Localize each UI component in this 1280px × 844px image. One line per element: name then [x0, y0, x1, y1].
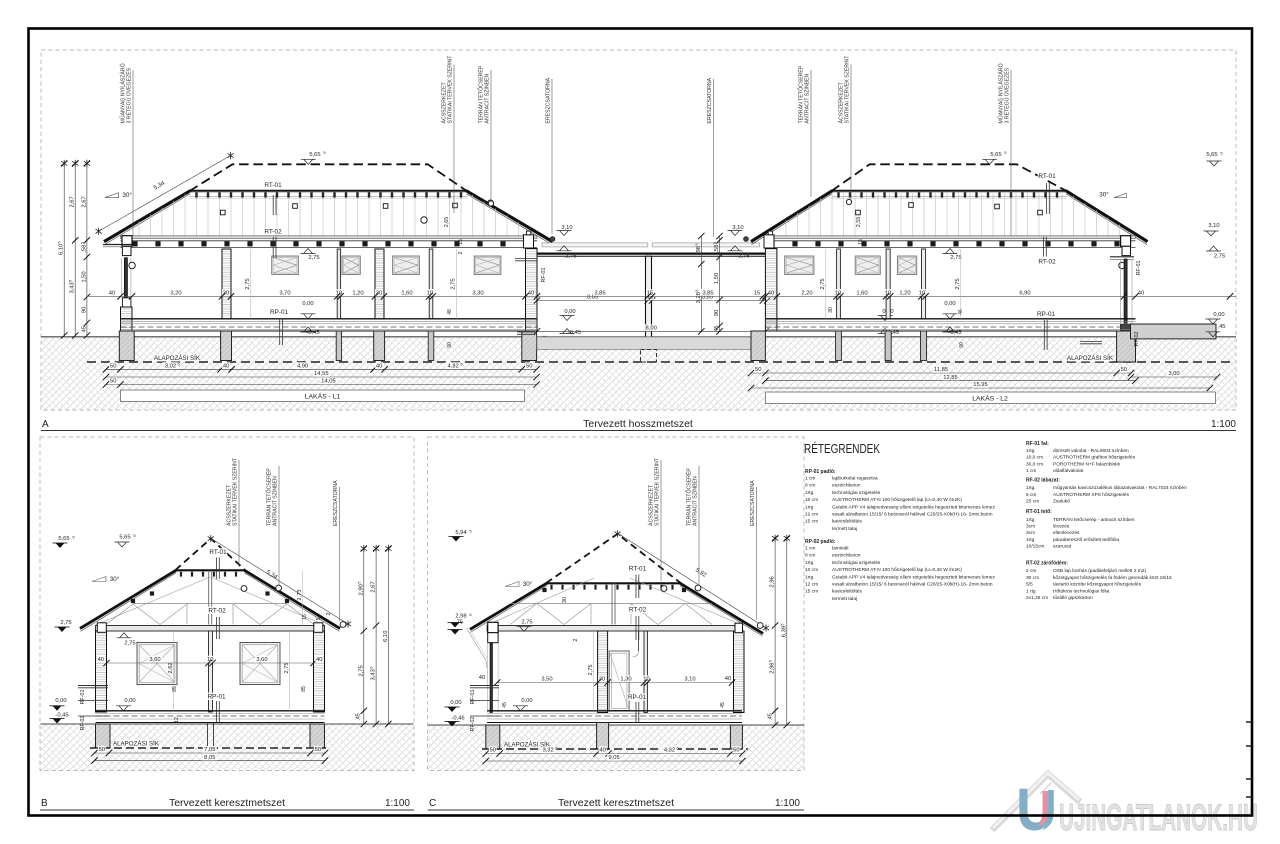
svg-text:LAKÁS - L1: LAKÁS - L1 — [305, 392, 341, 401]
svg-text:Tervezett hosszmetszet: Tervezett hosszmetszet — [583, 418, 693, 430]
svg-text:RT-02: RT-02 — [208, 608, 226, 615]
svg-text:4,90: 4,90 — [297, 364, 308, 370]
svg-text:12 cm: 12 cm — [805, 512, 818, 518]
svg-text:RÉTEGRENDEK: RÉTEGRENDEK — [804, 441, 880, 456]
svg-text:2: 2 — [326, 612, 332, 615]
svg-text:kavicsfeltöltés: kavicsfeltöltés — [832, 589, 862, 595]
svg-text:10: 10 — [207, 657, 213, 663]
svg-text:15: 15 — [647, 290, 653, 296]
svg-text:TERRÁN TETŐCSERÉP: TERRÁN TETŐCSERÉP — [798, 65, 805, 123]
svg-text:ALAPOZÁSI SÍK: ALAPOZÁSI SÍK — [113, 741, 160, 748]
svg-text:5: 5 — [460, 362, 462, 367]
svg-text:45: 45 — [502, 702, 508, 708]
svg-text:TERRÁN TETŐCSERÉP: TERRÁN TETŐCSERÉP — [686, 468, 693, 526]
svg-text:1,30: 1,30 — [620, 677, 631, 683]
svg-text:12 cm: 12 cm — [805, 582, 818, 588]
svg-text:50: 50 — [733, 748, 739, 754]
svg-text:3,10: 3,10 — [1208, 223, 1219, 229]
svg-text:0,00: 0,00 — [564, 309, 575, 315]
svg-text:6,39: 6,39 — [781, 626, 787, 637]
svg-text:5: 5 — [68, 280, 73, 282]
svg-text:termett talaj: termett talaj — [832, 596, 857, 602]
svg-text:30 cm: 30 cm — [1026, 575, 1039, 581]
svg-text:ÁCSSZERKEZET: ÁCSSZERKEZET — [648, 484, 655, 526]
svg-text:2,20: 2,20 — [801, 290, 812, 296]
svg-text:RP-02 padló:: RP-02 padló: — [805, 539, 836, 545]
svg-text:,58: ,58 — [81, 245, 87, 253]
svg-text:8,00: 8,00 — [646, 326, 657, 332]
svg-text:50: 50 — [490, 748, 496, 754]
svg-text:15: 15 — [754, 290, 760, 296]
svg-text:30,0 cm: 30,0 cm — [1026, 461, 1043, 467]
svg-text:45: 45 — [714, 325, 720, 331]
svg-text:12,85: 12,85 — [943, 375, 958, 381]
svg-text:ERESZCSATORNA: ERESZCSATORNA — [546, 77, 552, 123]
svg-text:2,75: 2,75 — [284, 663, 290, 674]
svg-text:RP-01 padló:: RP-01 padló: — [805, 469, 836, 475]
svg-text:laminált: laminált — [832, 546, 849, 552]
svg-text:1,60: 1,60 — [401, 290, 412, 296]
svg-text:STATIKAI TERVEK SZERINT: STATIKAI TERVEK SZERINT — [655, 457, 661, 526]
svg-text:2,75: 2,75 — [60, 620, 71, 626]
svg-text:RP-01: RP-01 — [1037, 311, 1056, 318]
svg-text:5: 5 — [79, 242, 84, 244]
svg-text:RT-02 zárófödém:: RT-02 zárófödém: — [1026, 561, 1068, 567]
svg-text:műgyantás kavicszúzalékos lába: műgyantás kavicszúzalékos lábazatvakolat… — [1053, 485, 1187, 491]
svg-text:1,20: 1,20 — [899, 290, 910, 296]
svg-text:1rtg: 1rtg — [805, 490, 814, 496]
svg-text:2,75: 2,75 — [950, 255, 961, 261]
svg-text:5: 5 — [356, 582, 361, 584]
svg-text:40: 40 — [599, 748, 605, 754]
svg-text:1:100: 1:100 — [385, 798, 410, 809]
svg-text:30°: 30° — [523, 580, 533, 588]
svg-text:2,75: 2,75 — [308, 255, 319, 261]
svg-text:RF-02: RF-02 — [80, 716, 86, 731]
svg-text:10 cm: 10 cm — [805, 567, 818, 573]
svg-text:2,67: 2,67 — [371, 581, 377, 592]
svg-text:2,75: 2,75 — [245, 278, 251, 289]
svg-text:2,75: 2,75 — [565, 254, 576, 260]
svg-text:1rtg.: 1rtg. — [1026, 448, 1036, 454]
svg-text:TERRÁN tetőcserép - antracit s: TERRÁN tetőcserép - antracit színben — [1053, 516, 1135, 523]
svg-text:5,65: 5,65 — [58, 536, 69, 542]
svg-text:3,10: 3,10 — [684, 677, 695, 683]
svg-text:6,10: 6,10 — [59, 244, 65, 255]
svg-text:5: 5 — [779, 624, 784, 626]
svg-text:ANTRACIT SZÍNBEN: ANTRACIT SZÍNBEN — [484, 73, 491, 123]
svg-text:3,43: 3,43 — [70, 282, 76, 293]
svg-text:5: 5 — [178, 362, 180, 367]
svg-text:Zsalukő: Zsalukő — [1053, 499, 1070, 505]
svg-text:10/15cm: 10/15cm — [1026, 544, 1044, 550]
svg-text:2,75: 2,75 — [955, 278, 961, 289]
svg-text:0,00: 0,00 — [124, 698, 135, 704]
svg-text:8,05: 8,05 — [204, 755, 215, 761]
svg-text:2,90: 2,90 — [358, 584, 364, 595]
svg-text:technológiai szigetelés: technológiai szigetelés — [832, 490, 881, 496]
svg-text:RF-01: RF-01 — [80, 690, 86, 705]
svg-text:6,10: 6,10 — [383, 631, 389, 642]
svg-text:9,05: 9,05 — [608, 755, 619, 761]
svg-text:2: 2 — [458, 251, 464, 254]
svg-text:3,10: 3,10 — [561, 225, 572, 231]
svg-text:2,75: 2,75 — [358, 665, 364, 676]
svg-text:5: 5 — [316, 617, 322, 620]
svg-text:Gutabit APP V4 talajnedvesség: Gutabit APP V4 talajnedvesség elleni szi… — [832, 504, 995, 510]
svg-text:dörzsölt vakolat - RAL9003 szí: dörzsölt vakolat - RAL9003 színben — [1053, 448, 1129, 454]
svg-text:90: 90 — [714, 310, 720, 316]
svg-text:3,28: 3,28 — [696, 292, 702, 303]
svg-text:5,94: 5,94 — [455, 530, 467, 536]
svg-text:2,75: 2,75 — [820, 278, 826, 289]
svg-text:12: 12 — [174, 717, 180, 723]
svg-text:AUSTROTHERM grafitos hőszigete: AUSTROTHERM grafitos hőszigetelés — [1053, 455, 1136, 461]
svg-text:2,75: 2,75 — [1214, 254, 1225, 260]
svg-text:1 cm: 1 cm — [805, 476, 815, 482]
svg-text:4,82: 4,82 — [448, 364, 459, 370]
svg-text:0,00: 0,00 — [944, 301, 955, 307]
svg-text:RT-02: RT-02 — [629, 607, 647, 614]
svg-text:8 cm: 8 cm — [805, 483, 815, 489]
svg-text:B: B — [41, 798, 48, 809]
svg-text:távtartó közötte kőzetgyapot h: távtartó közötte kőzetgyapot hőszigetelé… — [1053, 582, 1142, 588]
svg-text:1rtg.: 1rtg. — [1026, 485, 1036, 491]
svg-text:C: C — [429, 798, 436, 809]
svg-text:15: 15 — [302, 614, 308, 620]
svg-text:14,05: 14,05 — [321, 379, 336, 385]
svg-text:UJINGATLANOK.HU: UJINGATLANOK.HU — [1059, 797, 1258, 838]
svg-text:5: 5 — [369, 667, 374, 669]
svg-text:2,67: 2,67 — [70, 196, 76, 207]
svg-text:ERESZCSATORNA: ERESZCSATORNA — [333, 480, 339, 526]
svg-text:40: 40 — [223, 364, 229, 370]
svg-text:50: 50 — [110, 364, 116, 370]
svg-text:11,85: 11,85 — [934, 367, 948, 373]
svg-text:1:100: 1:100 — [775, 798, 800, 809]
svg-text:3 RÉTEGŰ ÜVEGEZÉS: 3 RÉTEGŰ ÜVEGEZÉS — [126, 67, 133, 123]
svg-text:40: 40 — [479, 675, 485, 681]
svg-text:RF-02: RF-02 — [1134, 332, 1140, 347]
svg-text:RF-01: RF-01 — [470, 690, 476, 705]
svg-text:1rtg: 1rtg — [805, 560, 814, 566]
svg-text:ERESZCSATORNA: ERESZCSATORNA — [707, 77, 713, 123]
svg-text:2,73: 2,73 — [297, 590, 303, 601]
svg-text:RP-01: RP-01 — [628, 694, 647, 701]
svg-text:,58: ,58 — [714, 245, 720, 253]
svg-text:LAKÁS - L2: LAKÁS - L2 — [972, 394, 1008, 403]
svg-text:-0,46: -0,46 — [451, 716, 464, 722]
svg-text:5,65: 5,65 — [1206, 152, 1217, 158]
svg-text:5: 5 — [712, 242, 717, 244]
svg-text:90: 90 — [81, 307, 87, 313]
svg-text:-0,45: -0,45 — [568, 330, 581, 336]
svg-text:40: 40 — [98, 657, 104, 663]
svg-text:RT-01: RT-01 — [629, 566, 647, 573]
svg-text:3,50: 3,50 — [541, 677, 552, 683]
svg-text:3,60: 3,60 — [256, 657, 267, 663]
svg-text:8 cm: 8 cm — [805, 553, 815, 559]
svg-text:ANTRACIT SZÍNBEN: ANTRACIT SZÍNBEN — [692, 476, 699, 526]
svg-text:1:100: 1:100 — [1211, 419, 1236, 430]
svg-text:RF-01: RF-01 — [541, 268, 547, 283]
svg-text:MŰANYAG NYÍLÁSZÁRÓ: MŰANYAG NYÍLÁSZÁRÓ — [120, 63, 127, 123]
svg-text:50: 50 — [315, 747, 321, 753]
svg-text:3,60: 3,60 — [149, 657, 160, 663]
svg-text:10: 10 — [885, 290, 891, 296]
svg-text:RT-01: RT-01 — [1038, 173, 1056, 180]
svg-text:esztrichbeton: esztrichbeton — [832, 483, 861, 489]
svg-text:RT-01: RT-01 — [264, 182, 282, 189]
svg-text:Gutabit APP V4 talajnedvesség: Gutabit APP V4 talajnedvesség elleni szi… — [832, 574, 995, 580]
svg-text:2 cm: 2 cm — [1026, 568, 1036, 574]
svg-text:-0,45: -0,45 — [55, 713, 68, 719]
svg-text:48: 48 — [447, 309, 453, 315]
svg-text:6,90: 6,90 — [1019, 290, 1030, 296]
svg-text:MŰANYAG NYÍLÁSZÁRÓ: MŰANYAG NYÍLÁSZÁRÓ — [998, 63, 1005, 123]
svg-text:40: 40 — [316, 657, 322, 663]
svg-text:45: 45 — [720, 702, 726, 708]
svg-text:30: 30 — [828, 307, 834, 313]
svg-text:,45: ,45 — [1217, 324, 1225, 330]
svg-text:RT-02: RT-02 — [1038, 259, 1056, 266]
svg-text:TERRÁN TETŐCSERÉP: TERRÁN TETŐCSERÉP — [266, 468, 273, 526]
svg-text:ellenlécezés: ellenlécezés — [1053, 530, 1080, 536]
svg-text:2,75: 2,75 — [738, 254, 749, 260]
svg-text:2,75: 2,75 — [451, 278, 457, 289]
svg-text:oldalfalvakolat: oldalfalvakolat — [1053, 468, 1084, 474]
svg-text:RF-01: RF-01 — [1136, 261, 1142, 276]
svg-text:5,65: 5,65 — [990, 152, 1001, 158]
svg-text:0,00: 0,00 — [302, 301, 313, 307]
svg-text:Hőtükrös technológiai fólia: Hőtükrös technológiai fólia — [1053, 588, 1110, 594]
svg-text:1 cm: 1 cm — [1026, 468, 1036, 474]
svg-text:30: 30 — [223, 290, 229, 296]
svg-text:14,55: 14,55 — [314, 371, 329, 377]
svg-text:tűzálló gipszkarton: tűzálló gipszkarton — [1053, 595, 1093, 601]
svg-text:1rtg: 1rtg — [1026, 517, 1035, 523]
svg-text:3,32: 3,32 — [542, 748, 553, 754]
svg-text:5,65: 5,65 — [309, 152, 320, 158]
svg-text:5: 5 — [694, 290, 699, 292]
svg-text:RP-01: RP-01 — [207, 694, 226, 701]
svg-text:30°: 30° — [122, 191, 132, 199]
svg-text:2x1,25 cm: 2x1,25 cm — [1026, 595, 1048, 601]
svg-text:,45: ,45 — [768, 713, 774, 720]
svg-text:2,67: 2,67 — [81, 196, 87, 207]
svg-text:5 cm: 5 cm — [1026, 492, 1036, 498]
svg-text:Tervezett keresztmetszet: Tervezett keresztmetszet — [169, 797, 285, 809]
svg-text:30: 30 — [562, 597, 568, 603]
svg-text:4,32: 4,32 — [664, 748, 675, 754]
svg-text:RF-02 lábazat:: RF-02 lábazat: — [1026, 478, 1060, 484]
svg-text:5: 5 — [57, 241, 62, 243]
svg-text:15 cm: 15 cm — [805, 589, 818, 595]
svg-text:40: 40 — [376, 364, 382, 370]
svg-text:ERESZCSATORNA: ERESZCSATORNA — [750, 480, 756, 526]
svg-text:5: 5 — [555, 746, 557, 751]
svg-text:3,85: 3,85 — [702, 290, 713, 296]
svg-text:1 rtg: 1 rtg — [1026, 588, 1036, 594]
svg-text:,45: ,45 — [356, 713, 362, 720]
svg-text:15: 15 — [858, 239, 864, 245]
svg-text:0,00: 0,00 — [55, 698, 66, 704]
svg-text:30: 30 — [376, 290, 382, 296]
svg-text:STATIKAI TERVEK SZERINT: STATIKAI TERVEK SZERINT — [233, 457, 239, 526]
svg-text:15,95: 15,95 — [973, 382, 988, 388]
svg-text:POROTHERM N+F falazóblokk: POROTHERM N+F falazóblokk — [1053, 461, 1121, 467]
svg-text:STATIKAI TERVEK SZERINT: STATIKAI TERVEK SZERINT — [448, 55, 454, 124]
svg-text:85: 85 — [172, 686, 178, 692]
svg-text:15: 15 — [458, 239, 464, 245]
svg-text:3,20: 3,20 — [170, 290, 181, 296]
svg-text:vasalt alzatbeton 15/15/ 6 bet: vasalt alzatbeton 15/15/ 6 betonacél hál… — [832, 512, 993, 518]
svg-text:3,43: 3,43 — [371, 669, 377, 680]
svg-text:2,75: 2,75 — [124, 641, 135, 647]
svg-text:-0,45: -0,45 — [306, 330, 319, 336]
svg-text:3 RÉTEGŰ ÜVEGEZÉS: 3 RÉTEGŰ ÜVEGEZÉS — [1004, 67, 1011, 123]
svg-text:10,0 cm: 10,0 cm — [1026, 455, 1043, 461]
svg-text:OSB lap borítás (padlásfeljáró: OSB lap borítás (padlásfeljáró mellett 2… — [1053, 568, 1146, 574]
svg-text:50: 50 — [526, 364, 532, 370]
svg-text:RT-02: RT-02 — [264, 229, 282, 236]
svg-text:1,60: 1,60 — [856, 290, 867, 296]
svg-text:3,85: 3,85 — [594, 290, 605, 296]
svg-text:3cm: 3cm — [1026, 530, 1035, 536]
svg-text:2,98: 2,98 — [770, 662, 776, 673]
svg-text:TERRÁN TETŐCSERÉP: TERRÁN TETŐCSERÉP — [478, 65, 485, 123]
svg-text:50: 50 — [755, 367, 761, 373]
svg-text:kavicsfeltöltés: kavicsfeltöltés — [832, 519, 862, 525]
svg-text:ANTRACIT SZÍNBEN: ANTRACIT SZÍNBEN — [804, 73, 811, 123]
svg-text:ALAPOZÁSI SÍK: ALAPOZÁSI SÍK — [1067, 355, 1114, 362]
svg-text:1 cm: 1 cm — [805, 546, 815, 552]
svg-text:3,00: 3,00 — [1168, 371, 1179, 377]
svg-text:termett talaj: termett talaj — [832, 526, 857, 532]
svg-text:páraáteresztő erősített tetőfó: páraáteresztő erősített tetőfólia — [1053, 537, 1119, 543]
svg-text:2,96: 2,96 — [770, 576, 776, 587]
svg-text:1rtg: 1rtg — [1026, 537, 1035, 543]
svg-text:90: 90 — [959, 342, 965, 348]
svg-text:RT-01 tető:: RT-01 tető: — [1026, 509, 1052, 515]
svg-text:3cm: 3cm — [1026, 524, 1035, 530]
svg-text:1,50: 1,50 — [714, 273, 720, 284]
svg-text:kőzetgyapot hőszigetelés fa fö: kőzetgyapot hőszigetelés fa födém gerend… — [1053, 575, 1172, 581]
svg-text:2,55: 2,55 — [856, 217, 862, 228]
svg-text:3,70: 3,70 — [279, 290, 290, 296]
svg-text:30°: 30° — [110, 575, 120, 583]
svg-text:lapburkolat ragasztva: lapburkolat ragasztva — [832, 476, 878, 482]
svg-text:Tervezett keresztmetszet: Tervezett keresztmetszet — [558, 797, 674, 809]
svg-text:1rtg: 1rtg — [805, 504, 814, 510]
svg-text:40: 40 — [109, 290, 115, 296]
svg-text:ÁCSSZERKEZET: ÁCSSZERKEZET — [838, 81, 845, 123]
svg-text:1,50: 1,50 — [81, 271, 87, 282]
svg-text:3,02: 3,02 — [165, 364, 176, 370]
svg-text:50: 50 — [110, 379, 116, 385]
svg-text:ÁCSSZERKEZET: ÁCSSZERKEZET — [226, 484, 233, 526]
svg-text:0,00: 0,00 — [1213, 312, 1224, 318]
svg-text:RT-01: RT-01 — [209, 549, 227, 556]
svg-text:lécezés: lécezés — [1053, 524, 1070, 530]
svg-text:46: 46 — [958, 309, 964, 315]
svg-text:25 cm: 25 cm — [1026, 499, 1039, 505]
svg-text:15 cm: 15 cm — [805, 519, 818, 525]
svg-text:AUSTROTHERM AT-N 100 hőszigete: AUSTROTHERM AT-N 100 hőszigetelő lap (U=… — [832, 497, 962, 503]
svg-text:5: 5 — [694, 243, 699, 245]
svg-text:AUSTROTHERM XPS hőszigetelés: AUSTROTHERM XPS hőszigetelés — [1053, 492, 1130, 498]
svg-text:ÁCSSZERKEZET: ÁCSSZERKEZET — [441, 81, 448, 123]
svg-text:AUSTROTHERM AT-N 100 hőszigete: AUSTROTHERM AT-N 100 hőszigetelő lap (U=… — [832, 567, 962, 573]
svg-text:RF-01 fal:: RF-01 fal: — [1026, 441, 1049, 447]
svg-text:10 cm: 10 cm — [805, 497, 818, 503]
svg-text:5: 5 — [677, 746, 679, 751]
svg-text:5,65: 5,65 — [119, 535, 130, 541]
svg-text:RF-02: RF-02 — [470, 717, 476, 732]
svg-text:90: 90 — [447, 342, 453, 348]
svg-text:3,30: 3,30 — [472, 290, 483, 296]
svg-text:85: 85 — [301, 686, 307, 692]
svg-text:50: 50 — [1121, 367, 1127, 373]
svg-text:2: 2 — [573, 638, 579, 641]
svg-text:,98: ,98 — [696, 246, 702, 254]
svg-text:30°: 30° — [1099, 191, 1109, 199]
svg-text:7,05: 7,05 — [204, 747, 215, 753]
svg-text:2,75: 2,75 — [521, 620, 532, 626]
svg-text:1rtg: 1rtg — [805, 574, 814, 580]
svg-text:2,65: 2,65 — [444, 217, 450, 228]
svg-text:5: 5 — [768, 660, 773, 662]
svg-text:50: 50 — [99, 747, 105, 753]
svg-text:esztrichbeton: esztrichbeton — [832, 553, 861, 559]
svg-text:2,62: 2,62 — [168, 663, 174, 674]
svg-text:0,00: 0,00 — [450, 700, 461, 706]
svg-text:0,00: 0,00 — [521, 698, 532, 704]
svg-text:40: 40 — [725, 676, 731, 682]
svg-text:45: 45 — [81, 326, 87, 332]
svg-text:30: 30 — [599, 677, 605, 683]
svg-text:A: A — [42, 419, 49, 430]
svg-text:technológiai szigetelés: technológiai szigetelés — [832, 560, 881, 566]
svg-text:2,75: 2,75 — [588, 665, 594, 676]
svg-text:vasalt alzatbeton 15/15/ 6 bet: vasalt alzatbeton 15/15/ 6 betonacél hál… — [832, 582, 993, 588]
svg-text:szaruzat: szaruzat — [1053, 544, 1072, 550]
svg-text:5/5: 5/5 — [1026, 582, 1033, 588]
svg-text:-0,45: -0,45 — [948, 330, 961, 336]
svg-text:1,20: 1,20 — [352, 290, 363, 296]
svg-text:3,10: 3,10 — [732, 225, 743, 231]
svg-text:STATIKAI TERVEK SZERINT: STATIKAI TERVEK SZERINT — [845, 55, 851, 124]
svg-text:ANTRACIT SZÍNBEN: ANTRACIT SZÍNBEN — [272, 476, 279, 526]
svg-text:RP-01: RP-01 — [270, 309, 289, 316]
